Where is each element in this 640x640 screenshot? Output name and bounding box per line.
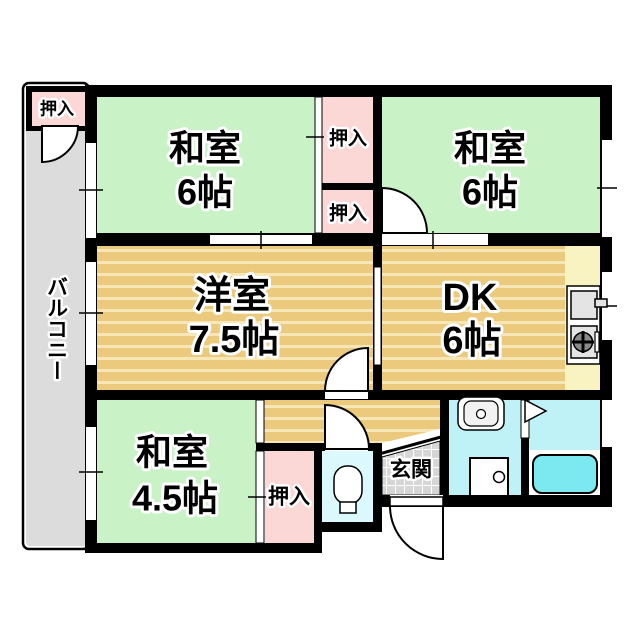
label-washitsu-tl-name: 和室 xyxy=(169,128,241,169)
label-washitsu-bl-name: 和室 xyxy=(136,432,208,473)
label-washitsu-tl-size: 6帖 xyxy=(177,172,233,213)
label-genkan: 玄関 xyxy=(390,458,432,482)
window-washitsu-bl xyxy=(86,427,96,520)
kitchen-faucet-icon xyxy=(595,299,607,307)
label-closet-top-left: 押入 xyxy=(40,99,74,119)
label-closet-mid-upper: 押入 xyxy=(329,127,367,150)
label-closet-bottom: 押入 xyxy=(268,485,310,509)
floor-plan-page: 和室 6帖 和室 6帖 洋室 7.5帖 DK 6帖 和室 4.5帖 押入 押入 … xyxy=(0,0,640,640)
label-balcony: バルコニー xyxy=(45,276,69,381)
washbasin-icon xyxy=(458,397,504,430)
washing-machine-icon xyxy=(470,458,508,496)
label-dk-name: DK xyxy=(443,277,498,319)
label-washitsu-tr-size: 6帖 xyxy=(462,172,518,213)
fusuma-youshitsu-dk xyxy=(374,267,381,365)
floor-plan-drawing: 和室 6帖 和室 6帖 洋室 7.5帖 DK 6帖 和室 4.5帖 押入 押入 … xyxy=(0,0,640,640)
bathtub-icon xyxy=(533,455,597,493)
label-closet-mid-lower: 押入 xyxy=(329,202,367,225)
doorway-washitsu-tr xyxy=(382,234,488,245)
label-youshitsu-name: 洋室 xyxy=(194,274,270,317)
kitchen-sink-icon xyxy=(571,291,597,319)
window-bathroom xyxy=(602,400,612,447)
fusuma-corridor-washitsu xyxy=(256,400,264,443)
label-dk-size: 6帖 xyxy=(442,320,501,362)
label-youshitsu-size: 7.5帖 xyxy=(189,319,280,361)
fusuma-closet-column xyxy=(315,97,322,233)
doorway-youshitsu xyxy=(325,391,368,399)
label-washitsu-tr-name: 和室 xyxy=(454,128,526,169)
entrance-door-leaf xyxy=(390,497,443,506)
room-dk xyxy=(382,246,565,392)
label-washitsu-bl-size: 4.5帖 xyxy=(132,478,218,519)
